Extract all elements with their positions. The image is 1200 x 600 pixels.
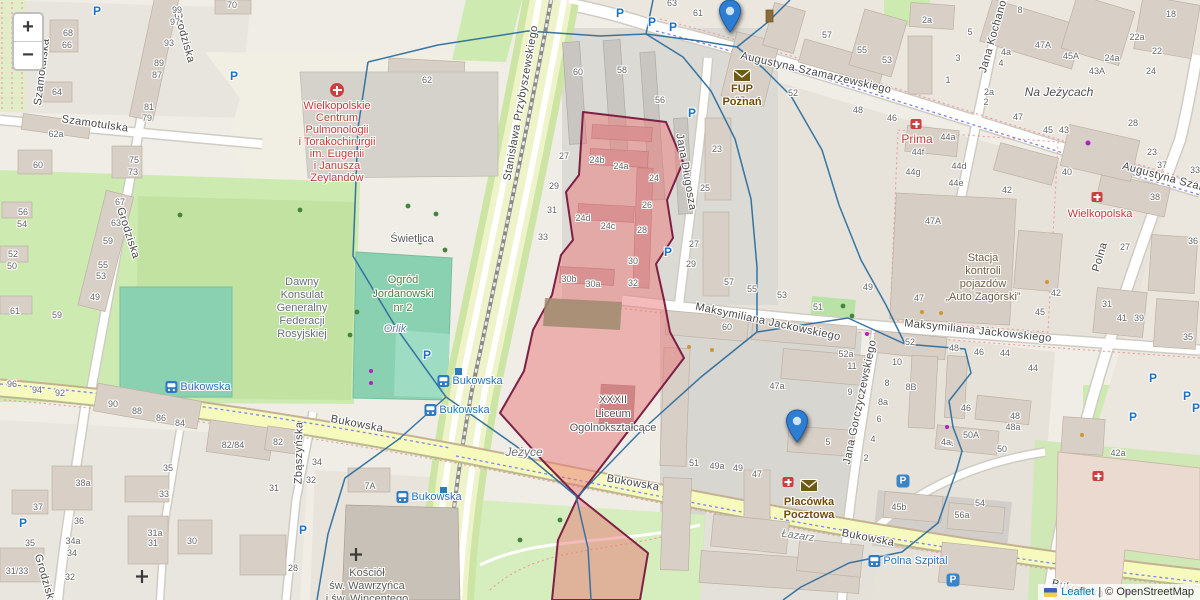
leaflet-link[interactable]: Leaflet [1061, 586, 1094, 598]
attribution-separator: | [1098, 586, 1101, 598]
zoom-control[interactable]: + − [12, 12, 44, 71]
post-office-icon [800, 479, 818, 497]
zoom-in-button[interactable]: + [14, 14, 42, 42]
ukraine-flag-icon [1044, 588, 1057, 597]
monument-icon [766, 10, 773, 22]
marker-label-line: Pocztowa [784, 509, 835, 522]
marker-label: FUP Poznań [722, 83, 761, 109]
base-map-svg[interactable] [0, 0, 1200, 600]
marker-label: PlacówkaPocztowa [784, 496, 835, 522]
openstreetmap-link[interactable]: © OpenStreetMap [1105, 586, 1194, 598]
marker-label-line: FUP Poznań [722, 83, 761, 109]
map-canvas[interactable]: SzamotulskaSzamotulskaGrodziskaGrodziska… [0, 0, 1200, 600]
tram-stop-square [440, 487, 447, 494]
tram-stop-square [455, 368, 462, 375]
zoom-out-button[interactable]: − [14, 42, 42, 69]
marker-label-line: Placówka [784, 496, 835, 509]
attribution-bar: Leaflet | © OpenStreetMap [1038, 584, 1200, 600]
